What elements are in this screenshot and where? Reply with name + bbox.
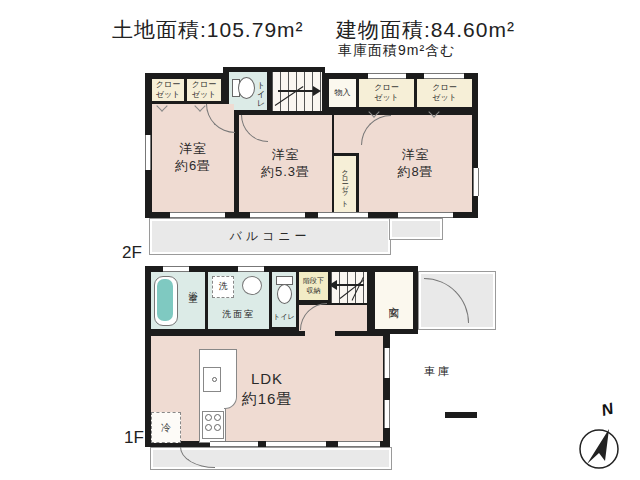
balcony: バルコニー: [149, 218, 391, 255]
closet-2f-middle: クローゼット: [334, 156, 356, 212]
window: [238, 266, 264, 272]
garage-gate-mark: [445, 412, 477, 418]
closet-2f-east2: クロー ゼット: [417, 79, 472, 107]
closet-2f-west1: クロー ゼット: [152, 79, 184, 101]
entrance-room: 玄関: [375, 272, 413, 329]
entrance-label: 玄関: [388, 299, 401, 303]
window: [424, 73, 464, 79]
window: [473, 168, 479, 196]
compass-icon: N: [572, 400, 632, 478]
stairs-1f-arrow-line: [336, 284, 364, 286]
room-2f-east-fill: [334, 115, 359, 153]
compass-north-label: N: [600, 400, 616, 419]
window: [163, 266, 189, 272]
toilet-label-1f: トイレ: [272, 312, 296, 321]
toilet-label-2f: トイレ: [255, 76, 265, 103]
arrow-right-icon: [313, 86, 321, 96]
stove-burner-icon: [214, 414, 221, 421]
balcony-step: [389, 218, 443, 240]
window: [384, 348, 390, 378]
stairs-2f-arrow-line: [278, 90, 314, 92]
closet-2f-east1: クロー ゼット: [359, 79, 414, 107]
bath-label: 浴室: [186, 284, 198, 288]
bathroom: 浴室: [151, 272, 205, 329]
window: [145, 135, 151, 170]
building-area-label: 建物面積:84.60m²: [336, 16, 515, 44]
garage-area-note: 車庫面積9m²含む: [338, 42, 455, 60]
window: [384, 400, 390, 428]
toilet-icon: [277, 284, 292, 304]
washer-icon: 洗: [212, 276, 234, 298]
floor-label-1f: 1F: [124, 428, 144, 448]
bathtub-icon: [157, 279, 173, 321]
garage-label: 車庫: [424, 364, 452, 379]
sink-icon: [242, 276, 262, 295]
arrow-left-icon: [329, 280, 337, 290]
room-ldk: LDK 約16畳: [151, 336, 383, 441]
kitchen-counter-bulge: [224, 349, 237, 409]
closet-2f-west2: クロー ゼット: [187, 79, 221, 101]
under-stair-storage: 階段下 収納: [299, 272, 328, 300]
toilet-icon: [238, 77, 255, 99]
window: [368, 73, 406, 79]
north-arrow-icon: [587, 429, 609, 464]
washroom-label: 洗面室: [208, 309, 269, 321]
land-area-label: 土地面積:105.79m²: [112, 16, 304, 44]
stove-burner-icon: [214, 424, 221, 431]
toilet-room-1f: トイレ: [272, 272, 296, 327]
washroom: 洗 洗面室: [208, 272, 269, 329]
kitchen-sink-icon: [212, 377, 217, 382]
storage-monoire-2f: 物入: [329, 79, 356, 107]
floor-label-2f: 2F: [122, 243, 142, 263]
fridge-icon: 冷: [151, 412, 181, 443]
stove-burner-icon: [205, 414, 212, 421]
stove-burner-icon: [205, 424, 212, 431]
